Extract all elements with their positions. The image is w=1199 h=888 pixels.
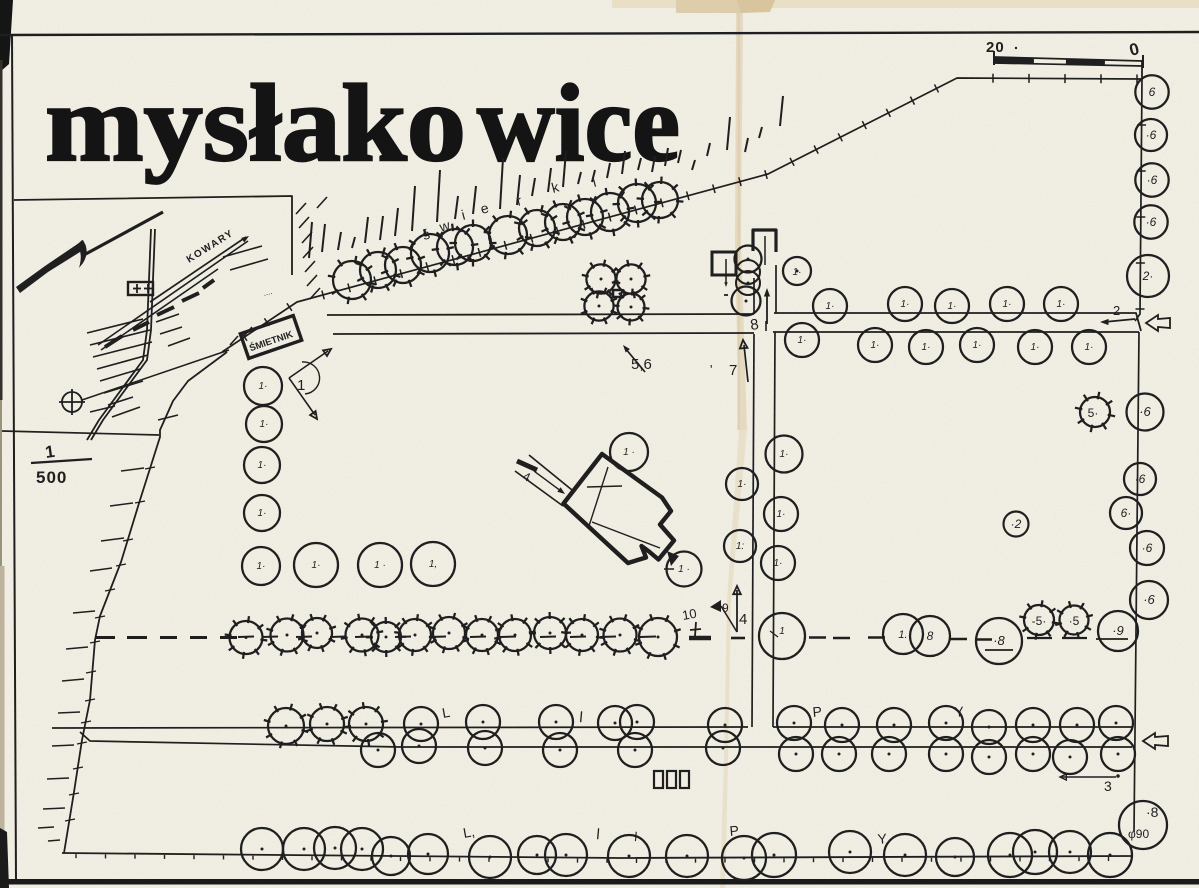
svg-text:1·: 1· <box>826 301 835 312</box>
svg-text:1·: 1· <box>901 299 910 310</box>
svg-text:1·: 1· <box>777 509 786 520</box>
svg-text:1: 1 <box>297 377 305 394</box>
svg-text:5·: 5· <box>1088 406 1099 420</box>
svg-text:4: 4 <box>739 611 747 628</box>
svg-text:1 ·: 1 · <box>374 560 386 571</box>
svg-text:1·: 1· <box>258 460 267 471</box>
svg-text:1·: 1· <box>1085 342 1094 353</box>
svg-text:1·: 1· <box>257 561 266 572</box>
svg-text:10: 10 <box>681 606 698 623</box>
svg-text:1·: 1· <box>793 267 802 278</box>
svg-text:6·: 6· <box>1121 506 1132 520</box>
svg-text:1 ·: 1 · <box>678 564 690 575</box>
svg-text:1 ·: 1 · <box>623 447 635 458</box>
svg-text:3: 3 <box>1104 778 1112 794</box>
svg-text:·6: ·6 <box>1142 541 1153 555</box>
svg-text:P: P <box>812 703 823 720</box>
svg-text:9: 9 <box>722 601 729 615</box>
svg-text:·8: ·8 <box>993 633 1005 648</box>
svg-text:500: 500 <box>36 468 67 487</box>
svg-text:mysłako: mysłako <box>45 62 466 184</box>
svg-text:1·: 1· <box>1031 342 1040 353</box>
svg-text:-5·: -5· <box>1032 614 1047 628</box>
svg-text:1: 1 <box>779 626 785 637</box>
svg-text:·6: ·6 <box>1135 472 1146 486</box>
svg-text:20: 20 <box>986 39 1005 56</box>
svg-text:1:: 1: <box>736 541 745 552</box>
svg-text:1·: 1· <box>780 449 789 460</box>
svg-text:·5: ·5 <box>1069 614 1080 628</box>
svg-text:1·: 1· <box>948 301 957 312</box>
svg-text:·8: ·8 <box>1146 804 1159 820</box>
svg-text:6: 6 <box>1149 85 1156 99</box>
svg-text:·6: ·6 <box>1143 592 1155 607</box>
svg-text:1,: 1, <box>429 559 437 570</box>
svg-text:φ90: φ90 <box>1128 827 1149 841</box>
svg-text:5,6: 5,6 <box>631 356 652 373</box>
svg-text:1·: 1· <box>312 560 321 571</box>
svg-text:1·: 1· <box>922 342 931 353</box>
svg-text:1·: 1· <box>871 340 880 351</box>
svg-text:1·: 1· <box>738 479 747 490</box>
svg-text:2·: 2· <box>1142 269 1154 283</box>
svg-text:1·: 1· <box>1003 299 1012 310</box>
svg-text:1·: 1· <box>258 508 267 519</box>
svg-text:P: P <box>729 822 740 839</box>
svg-text:2: 2 <box>1113 303 1120 318</box>
svg-text:8: 8 <box>927 629 934 643</box>
svg-text:1·: 1· <box>1057 299 1066 310</box>
svg-text:·6: ·6 <box>1139 404 1151 419</box>
svg-text:1·: 1· <box>973 340 982 351</box>
svg-text:1·: 1· <box>798 335 807 346</box>
svg-text:1·: 1· <box>774 558 783 569</box>
svg-text:1.: 1. <box>898 629 907 641</box>
svg-text:1·: 1· <box>260 419 269 430</box>
svg-text:·9: ·9 <box>1112 623 1124 638</box>
svg-text:·6: ·6 <box>1146 215 1157 229</box>
svg-text:·2: ·2 <box>1011 517 1022 531</box>
svg-text:7: 7 <box>729 362 737 379</box>
svg-text:1·: 1· <box>259 381 268 392</box>
svg-text:wice: wice <box>477 62 680 184</box>
svg-text:·6: ·6 <box>1147 173 1158 187</box>
svg-text:': ' <box>710 362 712 377</box>
svg-text:·6: ·6 <box>1146 128 1157 142</box>
